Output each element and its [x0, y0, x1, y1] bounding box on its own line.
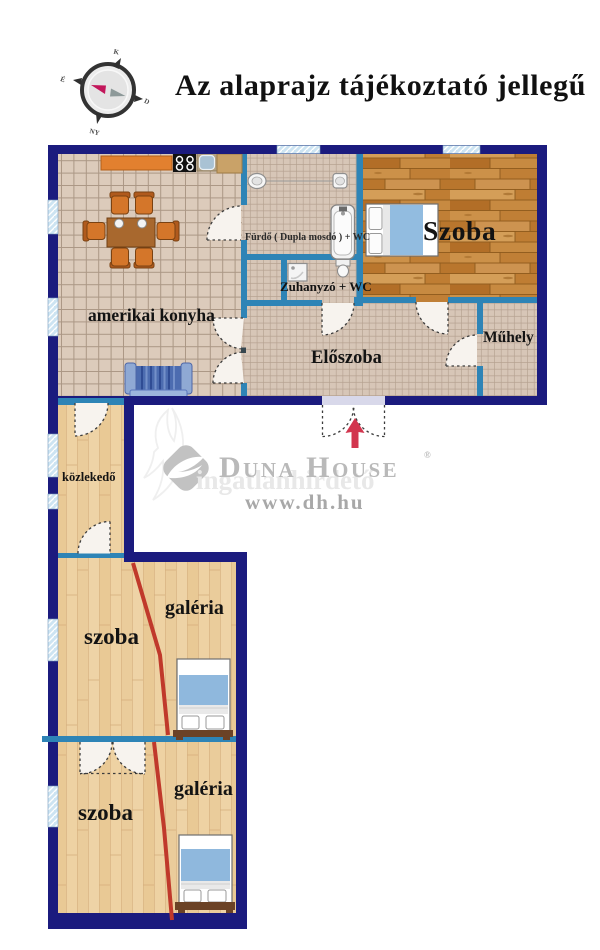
svg-text:Zuhanyzó + WC: Zuhanyzó + WC: [280, 279, 372, 294]
svg-text:Az alaprajz tájékoztató jelleg: Az alaprajz tájékoztató jellegű: [175, 69, 586, 102]
svg-text:galéria: galéria: [174, 778, 233, 800]
svg-text:®: ®: [424, 450, 431, 460]
svg-text:Szoba: Szoba: [423, 215, 496, 246]
svg-text:galéria: galéria: [165, 597, 224, 619]
svg-text:Duna House: Duna House: [219, 451, 399, 484]
svg-text:szoba: szoba: [84, 624, 139, 649]
svg-text:Előszoba: Előszoba: [311, 348, 382, 368]
svg-text:közlekedő: közlekedő: [62, 470, 115, 484]
svg-text:Műhely: Műhely: [483, 329, 534, 346]
svg-text:amerikai konyha: amerikai konyha: [88, 305, 215, 325]
svg-text:www.dh.hu: www.dh.hu: [245, 490, 365, 514]
svg-text:Fürdő ( Dupla mosdó ) + WC: Fürdő ( Dupla mosdó ) + WC: [245, 232, 370, 243]
svg-text:szoba: szoba: [78, 800, 133, 825]
